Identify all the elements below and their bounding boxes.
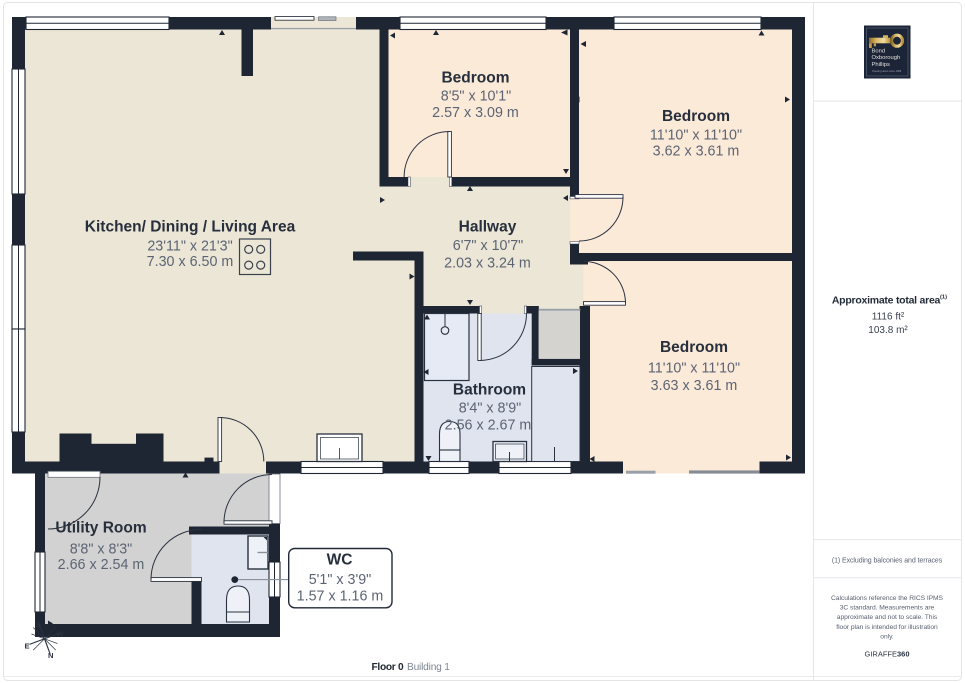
svg-text:Bedroom: Bedroom [662,108,730,125]
svg-text:Kitchen/ Dining / Living Area: Kitchen/ Dining / Living Area [85,218,296,235]
svg-text:11'10" x 11'10": 11'10" x 11'10" [650,128,742,144]
svg-text:GIRAFFE360: GIRAFFE360 [864,650,909,659]
svg-text:7.30 x 6.50 m: 7.30 x 6.50 m [147,254,234,270]
svg-text:Building 1: Building 1 [407,662,450,673]
svg-text:N: N [48,651,53,660]
svg-text:W: W [56,629,64,638]
svg-text:Bond: Bond [872,49,886,55]
svg-text:2.56 x 2.67 m: 2.56 x 2.67 m [445,418,532,434]
svg-text:E: E [24,641,29,650]
svg-text:1116 ft²: 1116 ft² [872,312,905,323]
svg-text:2.57 x 3.09 m: 2.57 x 3.09 m [432,105,519,121]
svg-text:Phillips: Phillips [872,62,890,68]
svg-text:Bedroom: Bedroom [660,339,728,356]
svg-text:Calculations reference the RIC: Calculations reference the RICS IPMS [831,595,944,602]
svg-text:Approximate total area: Approximate total area [832,294,941,306]
svg-text:(1): (1) [940,294,947,300]
svg-text:3.63 x 3.61 m: 3.63 x 3.61 m [651,378,738,394]
svg-text:5'1" x 3'9": 5'1" x 3'9" [309,572,372,588]
svg-text:Bedroom: Bedroom [441,69,509,86]
svg-text:1.57 x 1.16 m: 1.57 x 1.16 m [297,589,384,605]
svg-text:(1) Excluding balconies and te: (1) Excluding balconies and terraces [832,558,943,565]
svg-text:Utility Room: Utility Room [55,519,146,536]
svg-text:103.8 m²: 103.8 m² [868,325,908,336]
svg-text:Oxborough: Oxborough [872,55,901,61]
svg-text:Hallway: Hallway [459,218,517,235]
svg-text:2.03 x 3.24 m: 2.03 x 3.24 m [444,255,531,271]
svg-text:8'5" x 10'1": 8'5" x 10'1" [441,89,511,105]
svg-text:approximate and not to scale.: approximate and not to scale. This [837,614,938,621]
svg-text:Opening doors since 1998: Opening doors since 1998 [872,70,902,73]
svg-text:WC: WC [327,552,353,569]
svg-text:6'7" x 10'7": 6'7" x 10'7" [453,238,523,254]
svg-text:Floor 0: Floor 0 [372,662,404,673]
svg-text:8'8" x 8'3": 8'8" x 8'3" [70,541,133,557]
svg-text:3C standard. Measurements are: 3C standard. Measurements are [840,605,935,612]
svg-text:Bathroom: Bathroom [453,381,526,398]
svg-text:S: S [36,620,41,629]
svg-text:2.66 x 2.54 m: 2.66 x 2.54 m [58,557,145,573]
svg-text:3.62 x 3.61 m: 3.62 x 3.61 m [653,144,740,160]
svg-text:23'11" x 21'3": 23'11" x 21'3" [147,238,232,254]
svg-text:floor plan is intended for ill: floor plan is intended for illustration [836,624,938,631]
svg-text:8'4" x 8'9": 8'4" x 8'9" [459,401,522,417]
svg-text:only.: only. [880,633,894,640]
svg-text:11'10" x 11'10": 11'10" x 11'10" [648,360,740,376]
